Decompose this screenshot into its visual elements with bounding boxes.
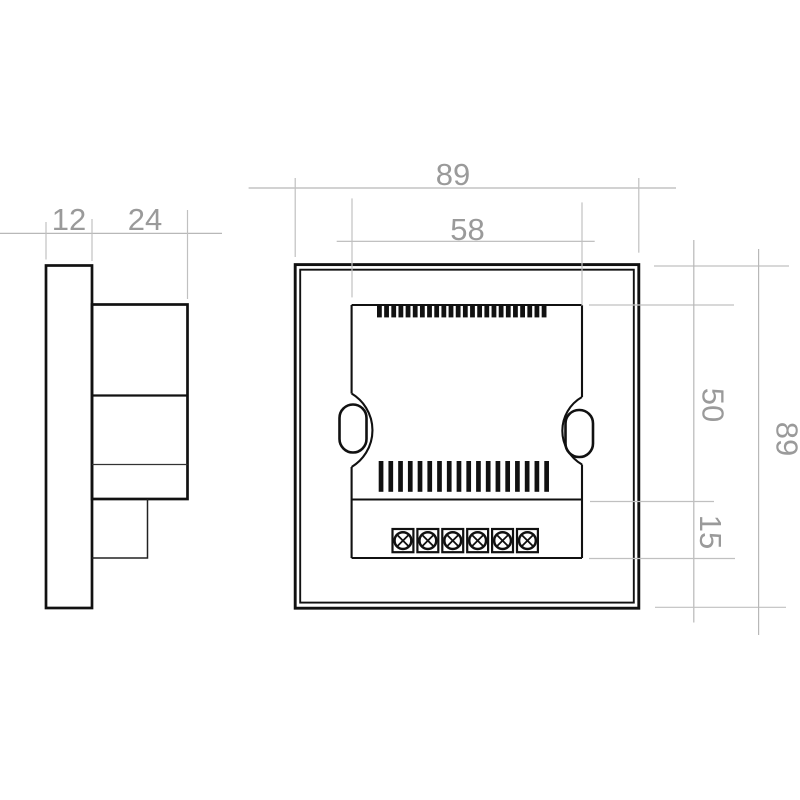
svg-text:50: 50 [696, 388, 731, 422]
svg-text:24: 24 [128, 202, 162, 237]
svg-text:12: 12 [52, 202, 86, 237]
svg-text:15: 15 [693, 515, 728, 549]
svg-text:58: 58 [450, 212, 484, 247]
svg-text:89: 89 [769, 422, 800, 456]
svg-text:89: 89 [436, 157, 470, 192]
